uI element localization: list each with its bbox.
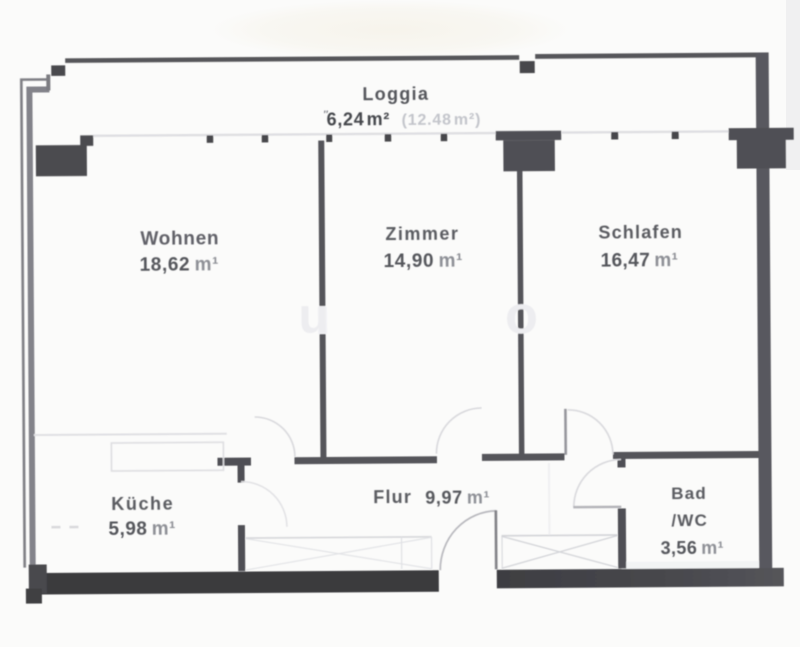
svg-text:Zimmer: Zimmer: [385, 224, 459, 245]
svg-text:5,98 m¹: 5,98 m¹: [108, 519, 176, 540]
svg-text:18,62 m¹: 18,62 m¹: [140, 254, 220, 276]
svg-text:/WC: /WC: [671, 511, 708, 530]
svg-text:(12.48 m²): (12.48 m²): [402, 111, 482, 129]
svg-text:3,56 m¹: 3,56 m¹: [661, 538, 725, 558]
svg-text:Loggia: Loggia: [362, 84, 429, 104]
svg-text:9,97 m¹: 9,97 m¹: [425, 487, 490, 507]
svg-text:6,24 m²: 6,24 m²: [327, 109, 391, 129]
svg-text:Schlafen: Schlafen: [598, 222, 683, 243]
svg-text:Küche: Küche: [111, 494, 174, 514]
svg-text:u: u: [298, 287, 329, 343]
svg-text:16,47 m¹: 16,47 m¹: [601, 250, 679, 272]
svg-text:Flur: Flur: [373, 487, 412, 507]
svg-text:Wohnen: Wohnen: [140, 228, 219, 250]
svg-text:14,90 m¹: 14,90 m¹: [384, 251, 464, 273]
svg-text:o: o: [505, 285, 538, 345]
svg-text:Bad: Bad: [671, 484, 707, 503]
